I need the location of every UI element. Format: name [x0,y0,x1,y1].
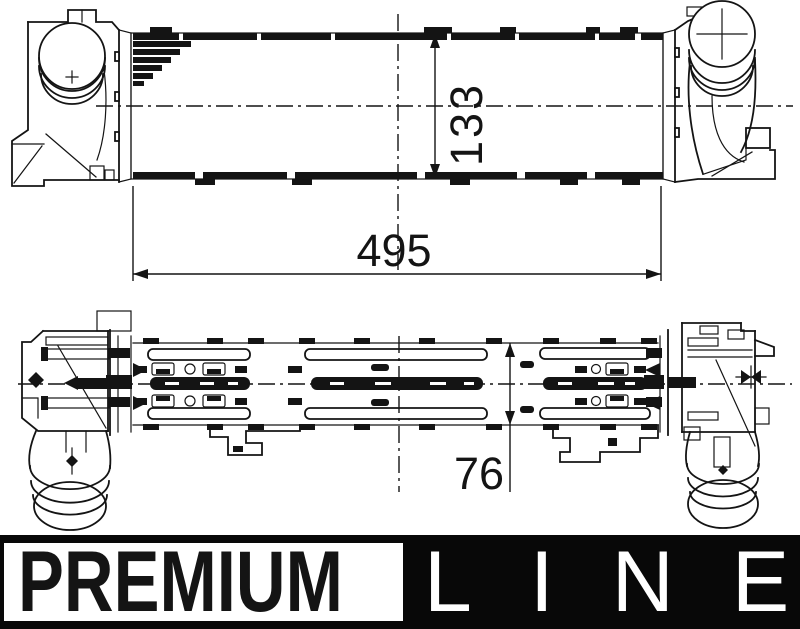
premium-line-banner: PREMIUM LINE [0,535,800,629]
plan-view: 76 [18,311,792,530]
flow-arrow [645,363,660,377]
bracket-lug [755,340,774,356]
mounting-foot-right [553,425,658,462]
rail-row-center [150,377,647,390]
flow-direction-symbol [741,370,751,384]
dimension-76: 76 [454,343,515,499]
bracket-diagonal [716,360,755,446]
plan-left-bracket [22,331,112,530]
dimension-495: 495 [133,186,661,281]
left-outlet-pipe [29,431,110,530]
right-tank [675,1,775,182]
flow-direction-symbol [751,370,761,384]
premium-text: PREMIUM [18,543,343,621]
dim-76-label: 76 [454,448,504,499]
hose-ring [30,466,110,489]
core-bottom-band [133,172,663,185]
left-foot-diagonal [14,146,42,183]
core-plan [133,338,658,462]
technical-drawing-sheet: 133 495 [0,0,800,629]
dim-arrow-left [133,269,148,279]
left-tank [12,10,119,186]
plan-left-plate [97,311,147,435]
stud [76,378,112,389]
center-diamond [66,455,78,467]
dim-arrow-up [505,343,515,357]
dim-133-label: 133 [441,82,492,166]
premium-label-box: PREMIUM [4,543,403,621]
flow-direction-diamond [28,372,44,388]
fin-hatching [133,41,191,86]
front-view: 133 495 [12,1,793,281]
plan-right-bracket [682,323,774,528]
hose-ring [31,481,109,503]
line-text: LINE [424,535,800,629]
dim-arrow-down [505,411,515,425]
stud-arrow [64,376,78,390]
dim-arrow-right [646,269,661,279]
right-outlet-pipe [684,427,759,528]
dim-495-label: 495 [356,225,431,276]
hose-ring [690,492,756,509]
flow-arrow [133,363,147,377]
